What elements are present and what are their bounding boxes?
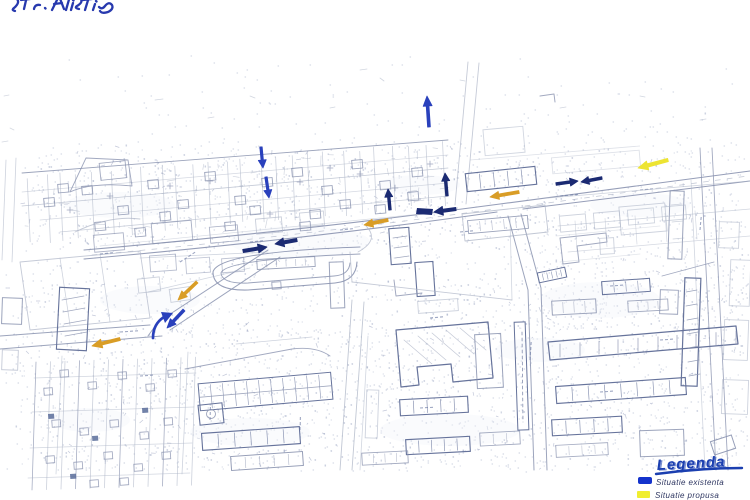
- svg-text:Situatie propusa: Situatie propusa: [655, 491, 719, 500]
- svg-text:Situatie existenta: Situatie existenta: [656, 478, 724, 487]
